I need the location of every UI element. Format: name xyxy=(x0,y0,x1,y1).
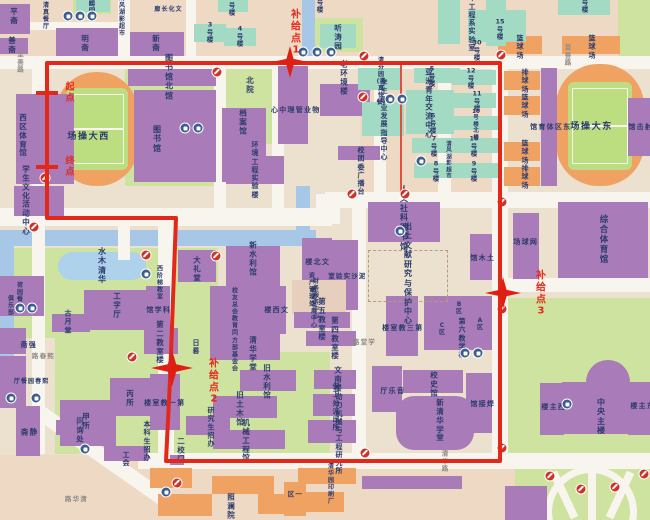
no-entry-icon xyxy=(141,250,152,261)
map-shape-road xyxy=(272,56,284,208)
building-label: 善斋 xyxy=(8,37,16,55)
map-shape-purple xyxy=(84,290,158,330)
map-shape-road xyxy=(118,208,130,260)
building-label: 老环境楼 xyxy=(340,60,348,95)
no-entry-icon xyxy=(497,197,508,208)
building-label: 清华学堂 xyxy=(249,336,257,371)
building-label: 工字厅 xyxy=(113,293,121,320)
map-shape-teal xyxy=(450,116,500,130)
building-label: 水木清华 xyxy=(98,247,106,285)
map-shape-purple xyxy=(628,383,650,435)
building-label: 照澜院 xyxy=(227,494,235,520)
road-label: 清华路 xyxy=(63,495,86,503)
amenity-icon xyxy=(31,393,42,404)
building-label: B区 xyxy=(456,301,462,315)
building-label: 平斋 xyxy=(10,8,18,26)
building-label: 11号楼 xyxy=(472,91,481,114)
map-shape-fieldgreen xyxy=(568,82,632,170)
no-entry-icon xyxy=(360,448,371,459)
building-label: 强斋 xyxy=(20,341,37,349)
no-entry-icon xyxy=(212,67,223,78)
map-shape-purple xyxy=(186,416,230,435)
map-shape-purple xyxy=(338,146,380,160)
map-shape-purple xyxy=(240,370,296,391)
map-shape-river xyxy=(0,230,316,246)
building-label: 科学馆 xyxy=(146,306,171,314)
map-shape-teal xyxy=(358,68,402,90)
map-shape-teal xyxy=(224,28,256,46)
building-label: 清华园印刷厂 xyxy=(328,463,334,505)
building-label: 静斋 xyxy=(19,428,37,437)
map-shape-purple xyxy=(170,455,184,465)
map-shape-green xyxy=(55,248,160,336)
map-shape-river xyxy=(0,246,14,406)
amenity-icon xyxy=(416,156,427,167)
map-shape-purple xyxy=(306,331,356,346)
building-label: 亚洲青年 交流中心 xyxy=(425,69,433,140)
building-label: 物业管理中心 xyxy=(270,106,320,114)
building-label: 大礼堂 xyxy=(193,257,201,284)
building-label: 财务服务中心 xyxy=(313,278,319,320)
building-label: 新斋 xyxy=(152,35,160,53)
start-point-label: 起点 xyxy=(65,82,74,103)
building-label: 文西楼 xyxy=(264,306,289,314)
building-label: 档案馆 xyxy=(239,110,247,137)
map-shape-green xyxy=(508,298,650,454)
amenity-icon xyxy=(460,348,471,359)
map-shape-redthin xyxy=(400,63,402,195)
building-label: 篮球场 xyxy=(522,94,529,119)
map-shape-purple xyxy=(0,328,26,354)
amenity-icon xyxy=(473,348,484,359)
amenity-icon xyxy=(80,444,91,455)
map-shape-pink xyxy=(0,455,650,520)
building-label: 第二 教室楼 xyxy=(156,321,164,365)
map-shape-green xyxy=(618,0,650,56)
map-shape-teal xyxy=(450,138,498,153)
building-label: 校友总会 教育 同方部 基金会 xyxy=(232,288,238,373)
amenity-icon xyxy=(180,123,191,134)
no-entry-icon xyxy=(545,471,556,482)
map-shape-green xyxy=(218,66,278,144)
building-label: 30号楼 xyxy=(472,40,481,63)
building-label: 汽车工程系 实验室 xyxy=(469,0,476,52)
map-shape-purple xyxy=(128,69,216,86)
amenity-icon xyxy=(75,11,86,22)
map-shape-purple xyxy=(403,370,463,393)
map-shape-road xyxy=(30,402,170,506)
supply-point-3-label: 补给点3 xyxy=(536,270,546,317)
map-shape-road xyxy=(352,196,366,454)
map-shape-purple xyxy=(368,202,440,242)
supply-point-2-star xyxy=(151,350,193,387)
map-shape-tanb xyxy=(292,280,346,314)
building-label: 本科生 招办 xyxy=(144,420,151,461)
building-label: 西阶梯教室 xyxy=(157,265,163,300)
building-label: 学生职业 发展指导 中心 xyxy=(381,79,388,162)
building-label: 6号楼 xyxy=(430,113,437,136)
map-shape-purple xyxy=(56,420,102,435)
map-shape-purple xyxy=(213,430,285,449)
building-label: 工会 xyxy=(123,451,130,468)
route-line xyxy=(47,63,500,461)
map-shape-purple xyxy=(16,94,74,184)
map-shape-teal xyxy=(194,24,226,42)
running-route xyxy=(0,0,650,520)
building-label: 篮球场 xyxy=(517,35,524,60)
building-label: 资产管理处 xyxy=(309,272,315,307)
map-shape-purple xyxy=(104,446,148,461)
map-shape-river xyxy=(296,186,310,236)
map-shape-teal xyxy=(468,10,526,42)
map-shape-purple xyxy=(266,286,286,334)
map-shape-purple xyxy=(513,213,539,279)
amenity-icon xyxy=(312,47,323,58)
building-label: 7号楼 xyxy=(317,0,324,14)
building-label: 10号楼北楼 xyxy=(472,109,480,141)
building-label: 新水利馆 xyxy=(249,241,257,276)
map-shape-road xyxy=(0,22,118,30)
building-label: 清风湖影超市 xyxy=(119,0,125,37)
building-label: 排球场 xyxy=(522,69,529,94)
map-shape-teal xyxy=(452,93,496,108)
map-shape-teal xyxy=(558,0,610,15)
campus-map: 平斋善斋清真餐厅观畴园清风湖影超市明斋新斋文化长廊2号楼3号楼4号楼7号楼听涛园… xyxy=(0,0,650,520)
building-label: 9号楼 xyxy=(471,161,478,184)
building-label: 听涛园 xyxy=(334,25,342,52)
building-label: 8号楼 xyxy=(433,161,440,184)
building-label: 文南楼 xyxy=(334,367,342,394)
map-shape-purple xyxy=(213,396,277,418)
map-shape-purple xyxy=(134,90,216,182)
no-entry-icon xyxy=(359,51,370,62)
no-entry-icon xyxy=(496,50,507,61)
map-shape-teal xyxy=(406,90,454,134)
map-shape-purple xyxy=(308,420,356,443)
map-shape-road xyxy=(606,471,634,520)
map-shape-pond xyxy=(58,252,146,280)
map-shape-purple xyxy=(144,328,178,354)
building-label: 甲所 xyxy=(82,413,90,431)
map-shape-outline xyxy=(70,94,124,164)
map-shape-orange xyxy=(56,72,138,186)
building-label: 日晷 xyxy=(193,339,200,356)
amenity-icon xyxy=(141,269,152,280)
end-point-label: 终点 xyxy=(65,156,74,177)
building-label: 土木馆 xyxy=(470,254,495,262)
building-label: 校史馆 xyxy=(430,372,438,399)
no-entry-icon xyxy=(639,469,650,480)
building-label: 网球场 xyxy=(513,238,538,246)
map-shape-ring xyxy=(545,466,637,520)
no-entry-icon xyxy=(610,482,621,493)
map-shape-road xyxy=(588,468,596,520)
building-label: 研究生 招办 xyxy=(208,406,215,447)
map-shape-purple xyxy=(302,238,332,286)
building-label: 第四教室楼 xyxy=(331,317,339,361)
map-shape-road xyxy=(186,0,196,56)
no-entry-icon xyxy=(29,222,40,233)
map-shape-teal xyxy=(362,102,404,136)
map-shape-road xyxy=(438,56,451,194)
map-shape-purple xyxy=(372,366,402,412)
map-shape-green xyxy=(180,352,330,454)
building-label: 图书馆 xyxy=(153,125,161,153)
map-shape-orange xyxy=(504,96,540,115)
building-label: 一区 xyxy=(285,490,300,498)
no-entry-icon xyxy=(497,443,508,454)
building-label: 东大操场 xyxy=(568,121,610,135)
map-shape-purple xyxy=(52,314,90,332)
amenity-icon xyxy=(397,94,408,105)
building-label: A区 xyxy=(477,317,483,331)
map-shape-purple xyxy=(466,373,492,433)
map-shape-purple xyxy=(332,240,358,310)
building-label: 动力机械与 工程研究所 xyxy=(336,393,343,476)
amenity-icon xyxy=(385,94,396,105)
map-shape-fieldgreen xyxy=(66,88,128,170)
building-label: 环境工程 实验楼 xyxy=(252,141,259,199)
map-shape-green xyxy=(315,18,363,52)
map-shape-teal xyxy=(450,163,498,178)
building-label: 篮球场 xyxy=(589,35,596,60)
building-label: 中央主楼 xyxy=(597,398,605,436)
no-entry-icon xyxy=(172,478,183,489)
building-label: 机械工程馆 xyxy=(242,419,250,463)
map-shape-purple xyxy=(14,186,64,216)
building-label: 5号楼 xyxy=(429,66,436,89)
map-shape-purple xyxy=(558,202,648,278)
road-label: 至善路 xyxy=(565,45,576,68)
map-shape-purple xyxy=(222,108,266,182)
amenity-icon xyxy=(63,11,74,22)
map-shape-purple xyxy=(540,383,564,435)
building-label: 俱乐部 xyxy=(8,295,14,316)
building-label: 问询处 xyxy=(76,418,84,445)
building-label: 熙春园餐厅 xyxy=(12,378,47,385)
map-shape-teal xyxy=(412,138,458,153)
map-shape-road xyxy=(118,0,130,56)
road-label: 学堂路 xyxy=(351,338,374,346)
building-label: 教师发展中心 xyxy=(311,287,317,329)
map-shape-purple xyxy=(470,234,492,280)
map-shape-purple xyxy=(313,394,355,416)
building-label: 排球场 xyxy=(522,165,529,190)
no-entry-icon xyxy=(576,484,587,495)
map-shape-purple xyxy=(210,286,280,360)
map-shape-road xyxy=(0,208,332,226)
map-shape-teal xyxy=(414,68,460,83)
building-label: 第五教室楼 xyxy=(318,298,326,342)
no-entry-icon xyxy=(347,189,358,200)
building-label: 图书馆北馆 xyxy=(165,53,173,100)
building-label: 北院 xyxy=(246,77,254,95)
map-shape-road xyxy=(325,192,650,208)
amenity-icon xyxy=(298,47,309,58)
building-label: 第一教室楼 xyxy=(143,399,184,407)
map-shape-orange xyxy=(504,142,540,161)
building-label: 西大操场 xyxy=(65,131,107,145)
map-shape-purple xyxy=(130,32,184,56)
map-shape-purple xyxy=(146,286,170,334)
map-shape-purple xyxy=(386,296,418,356)
map-shape-purple xyxy=(294,312,350,328)
amenity-icon xyxy=(161,487,172,498)
amenity-icon xyxy=(562,399,573,410)
map-shape-teal xyxy=(414,116,458,130)
map-shape-road xyxy=(374,66,386,192)
map-shape-orange xyxy=(284,482,306,516)
building-label: 校团委 广播台 xyxy=(358,146,365,196)
building-label: 新清华学堂 xyxy=(436,399,444,443)
map-shape-purple xyxy=(424,296,492,350)
amenity-icon xyxy=(27,303,38,314)
building-label: 东区体育馆 xyxy=(529,123,570,131)
map-shape-road xyxy=(70,128,124,130)
map-shape-teal xyxy=(452,70,496,85)
map-shape-purple xyxy=(0,4,30,34)
map-shape-road xyxy=(0,56,650,69)
building-label: 二校门 xyxy=(177,438,185,465)
amenity-icon xyxy=(15,303,26,314)
building-label: 15号楼 xyxy=(495,19,504,42)
building-label: 清真餐厅 xyxy=(43,2,49,30)
building-label: 焊接馆 xyxy=(470,400,495,408)
building-label: 3号楼 xyxy=(207,22,214,45)
building-label: 文化长廊 xyxy=(153,6,181,13)
map-shape-green xyxy=(0,248,60,338)
building-label: 10号楼 xyxy=(469,136,478,159)
map-shape-purple xyxy=(150,374,180,430)
map-shape-orange xyxy=(298,468,356,484)
amenity-icon xyxy=(193,123,204,134)
map-shape-road xyxy=(500,278,650,292)
building-label: C区 xyxy=(439,322,445,336)
road-label: 熙春路 xyxy=(30,352,53,360)
building-label: 文北楼 xyxy=(305,258,330,266)
map-shape-purple xyxy=(314,370,356,389)
map-shape-road xyxy=(214,56,226,208)
road-label: 至善路 xyxy=(17,52,27,75)
map-shape-purple xyxy=(362,476,462,489)
map-shape-green xyxy=(55,336,180,454)
map-shape-teal xyxy=(218,0,248,12)
map-shape-purple xyxy=(226,156,284,184)
building-label: 旧水利馆 xyxy=(263,364,271,399)
map-shape-orange xyxy=(300,492,344,512)
map-shape-purple xyxy=(56,28,118,56)
map-shape-orange xyxy=(504,71,540,90)
map-shape-road xyxy=(492,56,508,454)
building-label: 丙所 xyxy=(126,390,134,408)
building-label: 16号楼 xyxy=(580,0,589,14)
building-label: 音乐厅 xyxy=(380,387,405,395)
building-label: 篮球场 xyxy=(522,140,529,165)
map-shape-purple xyxy=(0,38,28,54)
building-label: 2号楼 xyxy=(229,0,236,17)
no-entry-icon xyxy=(127,352,138,363)
building-label: 第三教室楼 xyxy=(381,324,422,332)
amenity-icon xyxy=(87,11,98,22)
building-label: 清风湖影超市 xyxy=(446,142,452,181)
amenity-icon xyxy=(6,393,17,404)
map-shape-pink xyxy=(0,0,650,56)
building-label: 射击馆 xyxy=(628,123,650,131)
amenity-icon xyxy=(395,226,406,237)
map-shape-purple xyxy=(586,360,630,404)
map-shape-orange xyxy=(212,476,274,494)
map-shape-road xyxy=(138,453,650,469)
no-entry-icon xyxy=(358,92,369,103)
map-shape-road xyxy=(572,125,628,127)
building-label: 保卫处 派出所 xyxy=(333,382,340,432)
building-label: 综合体育馆 xyxy=(600,215,609,265)
map-shape-green xyxy=(158,248,218,360)
map-shape-pink xyxy=(360,66,500,194)
road-label: 清华路 xyxy=(442,451,453,474)
map-shape-road xyxy=(316,194,340,224)
map-shape-dash xyxy=(368,250,448,302)
building-label: 12号楼 xyxy=(466,68,475,91)
building-label: 泥沙实验室 xyxy=(326,272,364,280)
building-label: 东主楼 xyxy=(630,402,650,410)
building-label: 明斋 xyxy=(81,35,89,53)
building-label: 旧土木馆 xyxy=(236,391,244,426)
map-shape-purple xyxy=(505,486,547,520)
building-label: 7号楼 xyxy=(431,136,438,159)
map-shape-purple xyxy=(226,246,280,288)
map-shape-purple xyxy=(278,66,308,144)
no-entry-icon xyxy=(40,173,51,184)
map-shape-teal xyxy=(438,0,460,44)
map-shape-purple xyxy=(396,396,474,450)
amenity-icon xyxy=(326,47,337,58)
map-shape-orange xyxy=(562,36,620,54)
map-shape-outline xyxy=(572,88,628,164)
map-shape-purple xyxy=(16,406,40,456)
map-shape-road xyxy=(158,208,174,454)
map-shape-orange xyxy=(258,494,306,514)
map-shape-purple xyxy=(541,68,557,186)
building-label: 出土文献研究 与保护中心 xyxy=(404,222,412,326)
building-label: 4号楼 xyxy=(237,26,244,49)
map-shape-orange xyxy=(504,167,540,186)
supply-point-3-star xyxy=(485,277,521,309)
building-label: 西区 体育馆 xyxy=(19,114,27,158)
map-shape-purple xyxy=(60,400,116,446)
building-label: 古月堂 xyxy=(65,310,72,335)
map-shape-purple xyxy=(562,382,650,434)
supply-point-2-label: 补给点2 xyxy=(209,358,219,405)
map-shape-teal xyxy=(486,0,506,46)
no-entry-icon xyxy=(400,189,411,200)
map-shape-teal xyxy=(320,24,356,48)
no-entry-icon xyxy=(211,251,222,262)
map-shape-purple xyxy=(628,98,650,156)
map-shape-orange xyxy=(556,64,644,186)
map-shape-purple xyxy=(110,378,152,416)
